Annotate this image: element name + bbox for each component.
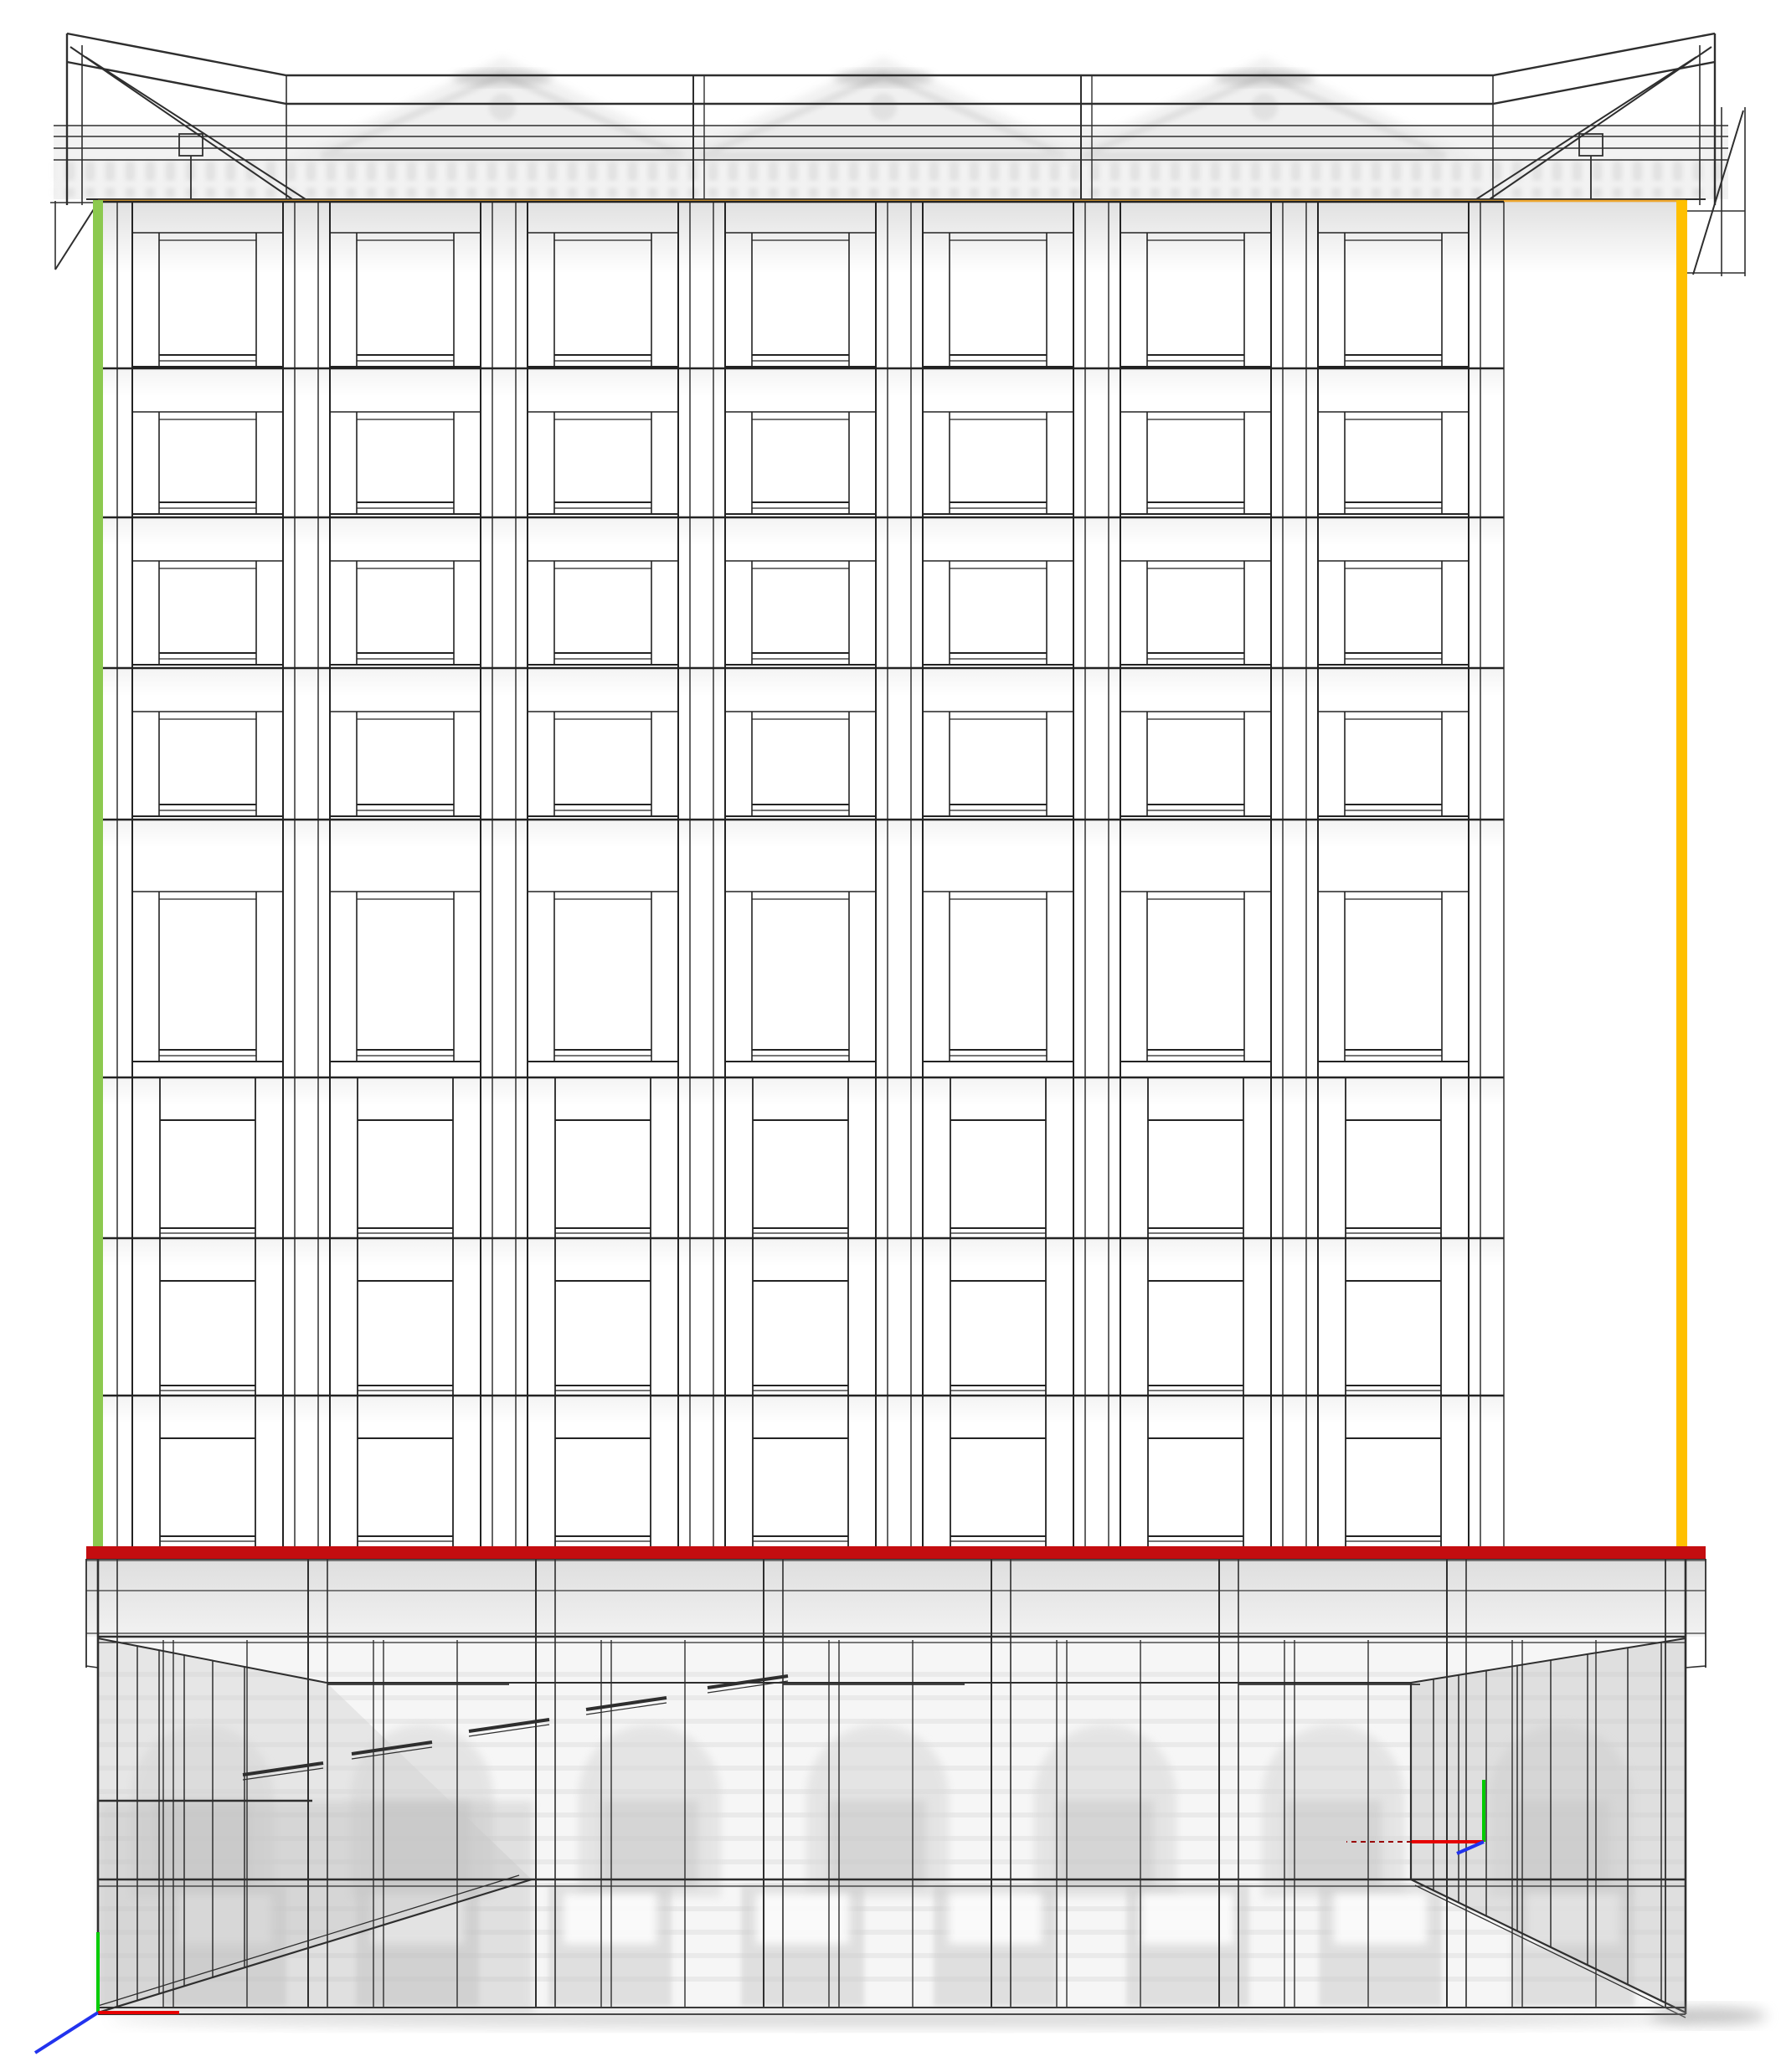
facade-column-1: [132, 202, 318, 1546]
facade-column-7: [1318, 202, 1504, 1546]
crown-photo-layer: [54, 57, 1728, 199]
red-datum-band: [86, 1546, 1706, 1559]
facade-column-6: [1120, 202, 1306, 1546]
amber-height-guide: [1676, 200, 1687, 1548]
facade-column-2: [330, 202, 516, 1546]
facade-shading-layer: [98, 202, 1686, 1424]
facade-column-3: [528, 202, 713, 1546]
facade-column-4: [725, 202, 911, 1546]
facade-column-5: [923, 202, 1109, 1546]
facade-window-grid: [103, 202, 1504, 1546]
model-viewport[interactable]: [0, 0, 1781, 2072]
pavilion-photo-layer: [86, 1559, 1706, 2013]
green-height-guide: [93, 200, 103, 1548]
scene-canvas: [0, 0, 1781, 2072]
